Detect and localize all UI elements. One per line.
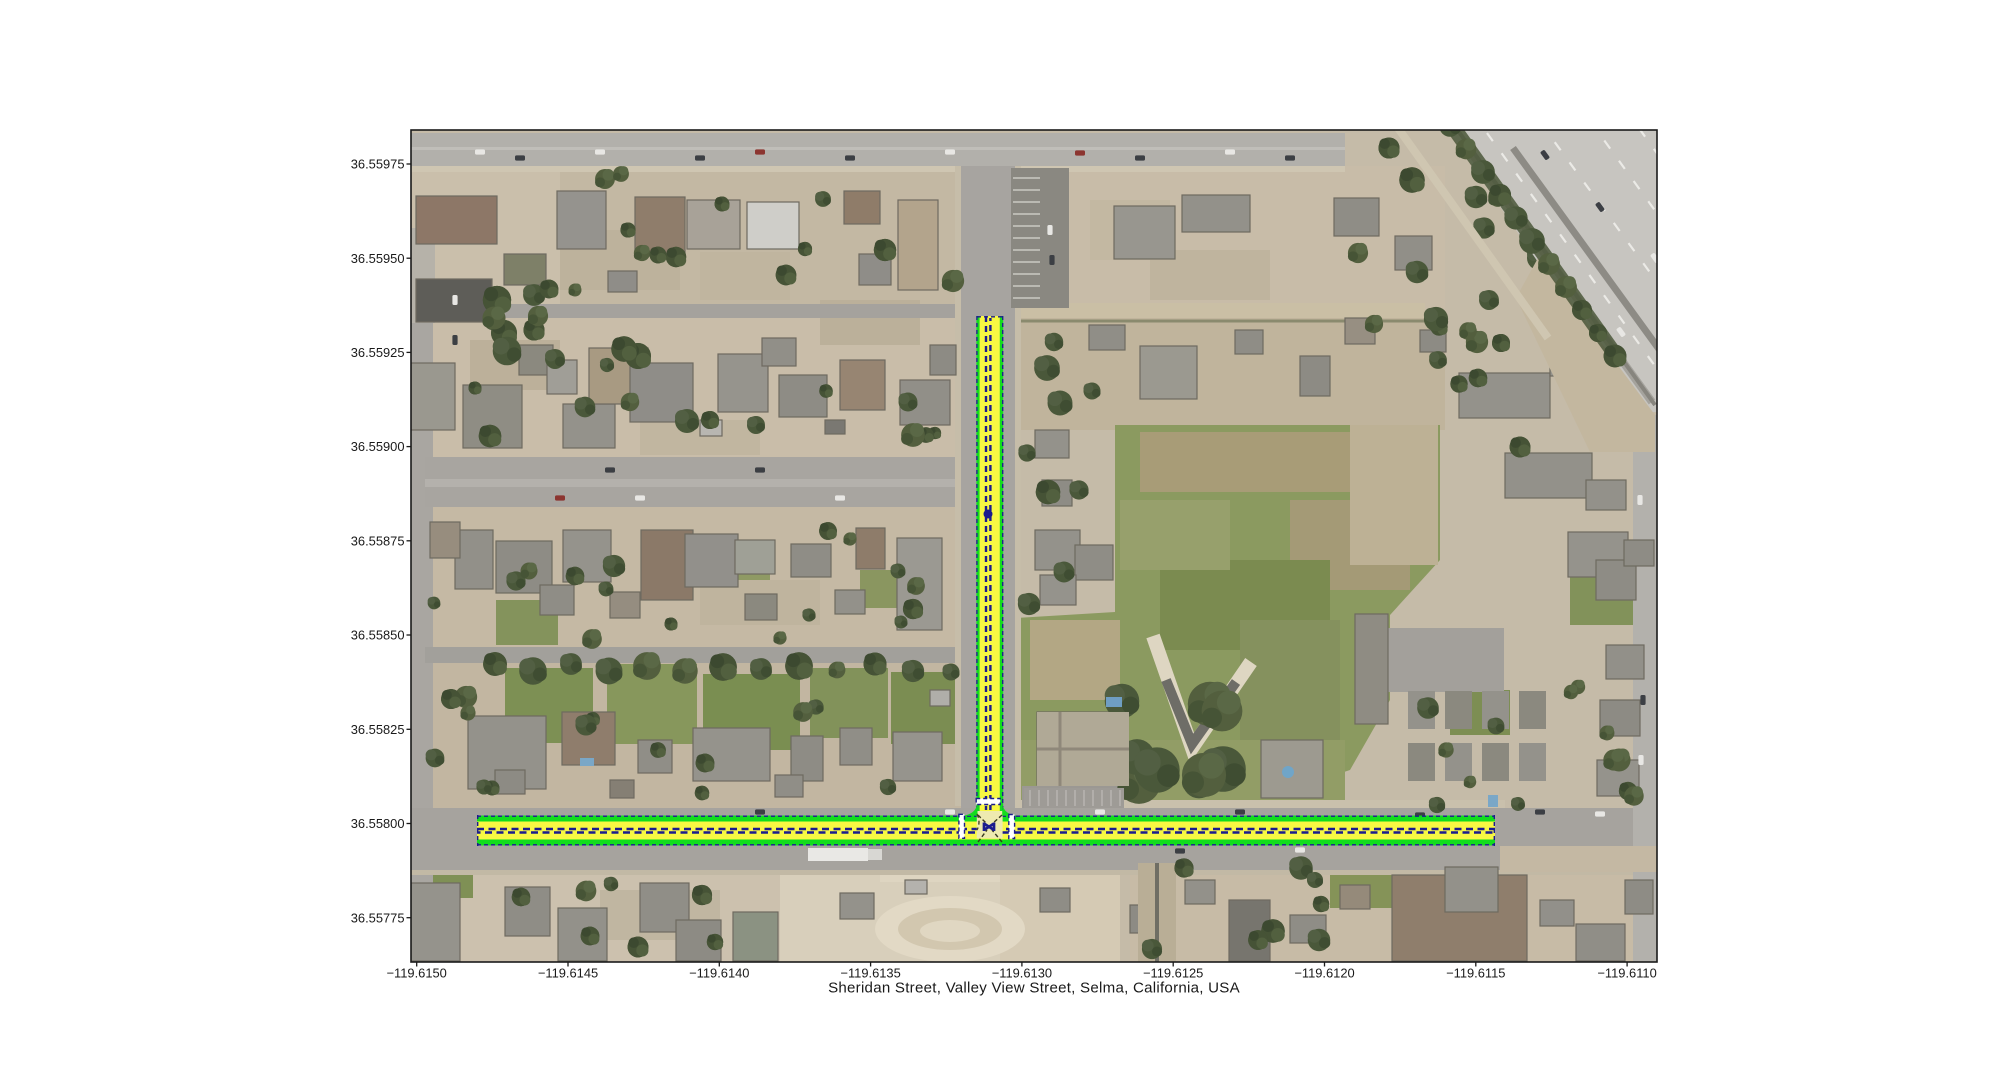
svg-text:36.55925: 36.55925	[351, 345, 405, 360]
svg-text:36.55875: 36.55875	[351, 533, 405, 548]
svg-text:36.55800: 36.55800	[351, 816, 405, 831]
svg-text:36.55775: 36.55775	[351, 910, 405, 925]
svg-text:−119.6125: −119.6125	[1143, 966, 1203, 981]
svg-text:−119.6130: −119.6130	[992, 966, 1052, 981]
svg-text:36.55950: 36.55950	[351, 251, 405, 266]
svg-text:36.55975: 36.55975	[351, 157, 405, 172]
svg-text:−119.6115: −119.6115	[1446, 966, 1505, 981]
svg-text:−119.6150: −119.6150	[387, 966, 447, 981]
svg-text:−119.6145: −119.6145	[538, 966, 598, 981]
svg-text:36.55900: 36.55900	[351, 439, 405, 454]
svg-text:−119.6135: −119.6135	[840, 966, 900, 981]
svg-text:36.55825: 36.55825	[351, 722, 405, 737]
svg-text:36.55850: 36.55850	[351, 628, 405, 643]
svg-text:−119.6110: −119.6110	[1597, 966, 1656, 981]
svg-text:Sheridan Street, Valley View S: Sheridan Street, Valley View Street, Sel…	[828, 980, 1241, 997]
svg-text:−119.6120: −119.6120	[1294, 966, 1354, 981]
svg-text:−119.6140: −119.6140	[689, 966, 749, 981]
